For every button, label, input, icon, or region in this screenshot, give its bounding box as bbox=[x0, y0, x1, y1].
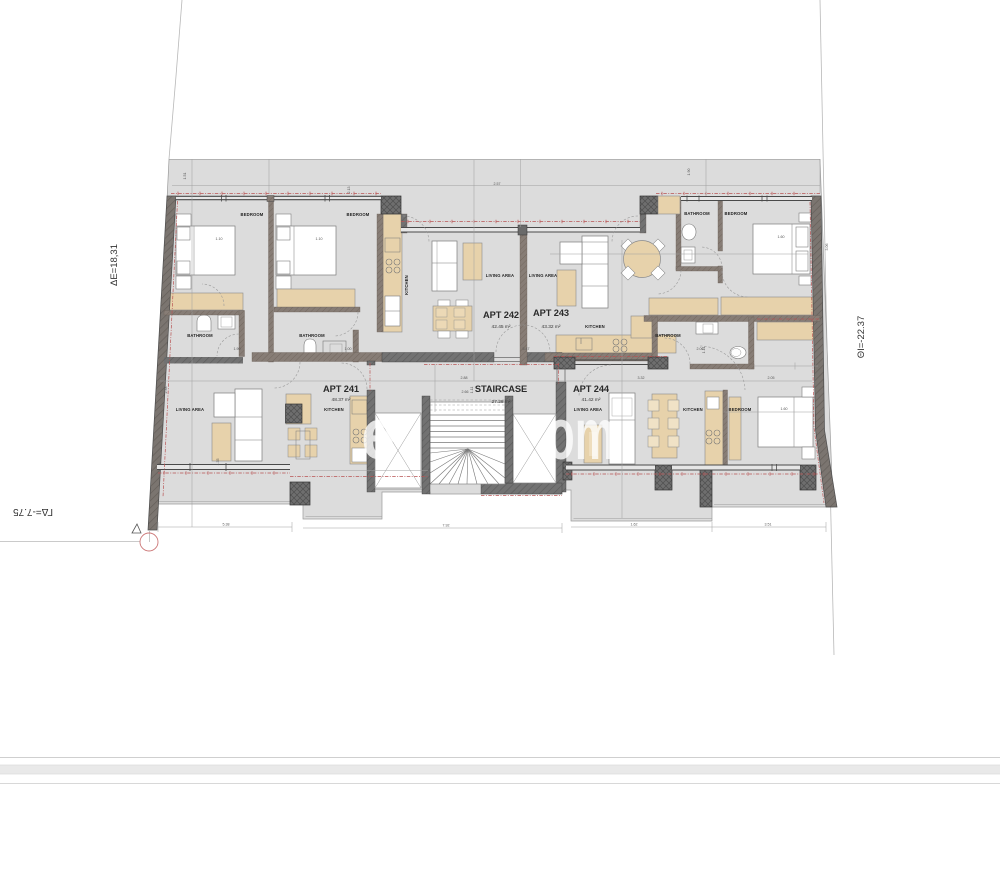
svg-text:BATHROOM: BATHROOM bbox=[299, 333, 325, 338]
svg-text:48.37 m²: 48.37 m² bbox=[332, 397, 351, 403]
svg-text:BATHROOM: BATHROOM bbox=[187, 333, 213, 338]
svg-text:2.33: 2.33 bbox=[164, 387, 168, 394]
svg-text:1.11: 1.11 bbox=[702, 347, 706, 354]
svg-text:7.92: 7.92 bbox=[443, 524, 450, 528]
svg-text:2.57: 2.57 bbox=[494, 182, 501, 186]
svg-text:BEDROOM: BEDROOM bbox=[725, 211, 748, 216]
svg-text:LIVING AREA: LIVING AREA bbox=[486, 273, 514, 278]
svg-text:BATHROOM: BATHROOM bbox=[655, 333, 681, 338]
svg-text:42.45 m²: 42.45 m² bbox=[492, 324, 511, 330]
svg-text:LIVING AREA: LIVING AREA bbox=[529, 273, 557, 278]
svg-text:KITCHEN: KITCHEN bbox=[683, 407, 703, 412]
svg-text:LIVING AREA: LIVING AREA bbox=[176, 407, 204, 412]
svg-text:APT 241: APT 241 bbox=[323, 384, 359, 394]
svg-text:KITCHEN: KITCHEN bbox=[404, 275, 409, 295]
svg-text:2.05: 2.05 bbox=[768, 376, 775, 380]
svg-text:3.06: 3.06 bbox=[825, 244, 829, 251]
svg-text:1.10: 1.10 bbox=[316, 237, 323, 241]
svg-text:1.62: 1.62 bbox=[631, 523, 638, 527]
svg-text:ΓΔ=-7.75: ΓΔ=-7.75 bbox=[13, 506, 53, 517]
svg-text:KITCHEN: KITCHEN bbox=[585, 324, 605, 329]
svg-text:5.38: 5.38 bbox=[223, 523, 230, 527]
svg-text:BATHROOM: BATHROOM bbox=[684, 211, 710, 216]
svg-text:1.35: 1.35 bbox=[216, 459, 220, 466]
svg-text:APT 242: APT 242 bbox=[483, 310, 519, 320]
svg-text:2.66: 2.66 bbox=[462, 390, 469, 394]
svg-text:3.51: 3.51 bbox=[765, 523, 772, 527]
svg-text:2.13: 2.13 bbox=[347, 187, 351, 194]
svg-text:43.32 m²: 43.32 m² bbox=[542, 324, 561, 330]
svg-text:1.51: 1.51 bbox=[183, 173, 187, 180]
svg-text:1.00: 1.00 bbox=[345, 347, 352, 351]
svg-text:BEDROOM: BEDROOM bbox=[241, 212, 264, 217]
svg-text:e: e bbox=[361, 393, 398, 474]
svg-text:27.28 m²: 27.28 m² bbox=[492, 399, 511, 405]
svg-text:ΘΙ=-22.37: ΘΙ=-22.37 bbox=[856, 316, 867, 359]
svg-text:1.10: 1.10 bbox=[216, 237, 223, 241]
svg-text:5.47: 5.47 bbox=[523, 347, 530, 351]
svg-text:1.60: 1.60 bbox=[778, 235, 785, 239]
svg-text:BEDROOM: BEDROOM bbox=[347, 212, 370, 217]
svg-text:1.11: 1.11 bbox=[470, 387, 474, 394]
svg-text:2.88: 2.88 bbox=[461, 376, 468, 380]
svg-text:1.60: 1.60 bbox=[781, 407, 788, 411]
svg-text:1.90: 1.90 bbox=[234, 347, 241, 351]
svg-text:om: om bbox=[547, 394, 615, 474]
svg-text:APT 243: APT 243 bbox=[533, 308, 569, 318]
svg-text:STAIRCASE: STAIRCASE bbox=[475, 384, 527, 394]
svg-text:ΔΕ=18,31: ΔΕ=18,31 bbox=[109, 244, 120, 286]
svg-text:1.90: 1.90 bbox=[687, 169, 691, 176]
svg-text:APT 244: APT 244 bbox=[573, 384, 610, 394]
svg-text:BEDROOM: BEDROOM bbox=[729, 407, 752, 412]
svg-text:KITCHEN: KITCHEN bbox=[324, 407, 344, 412]
svg-text:3.32: 3.32 bbox=[638, 376, 645, 380]
